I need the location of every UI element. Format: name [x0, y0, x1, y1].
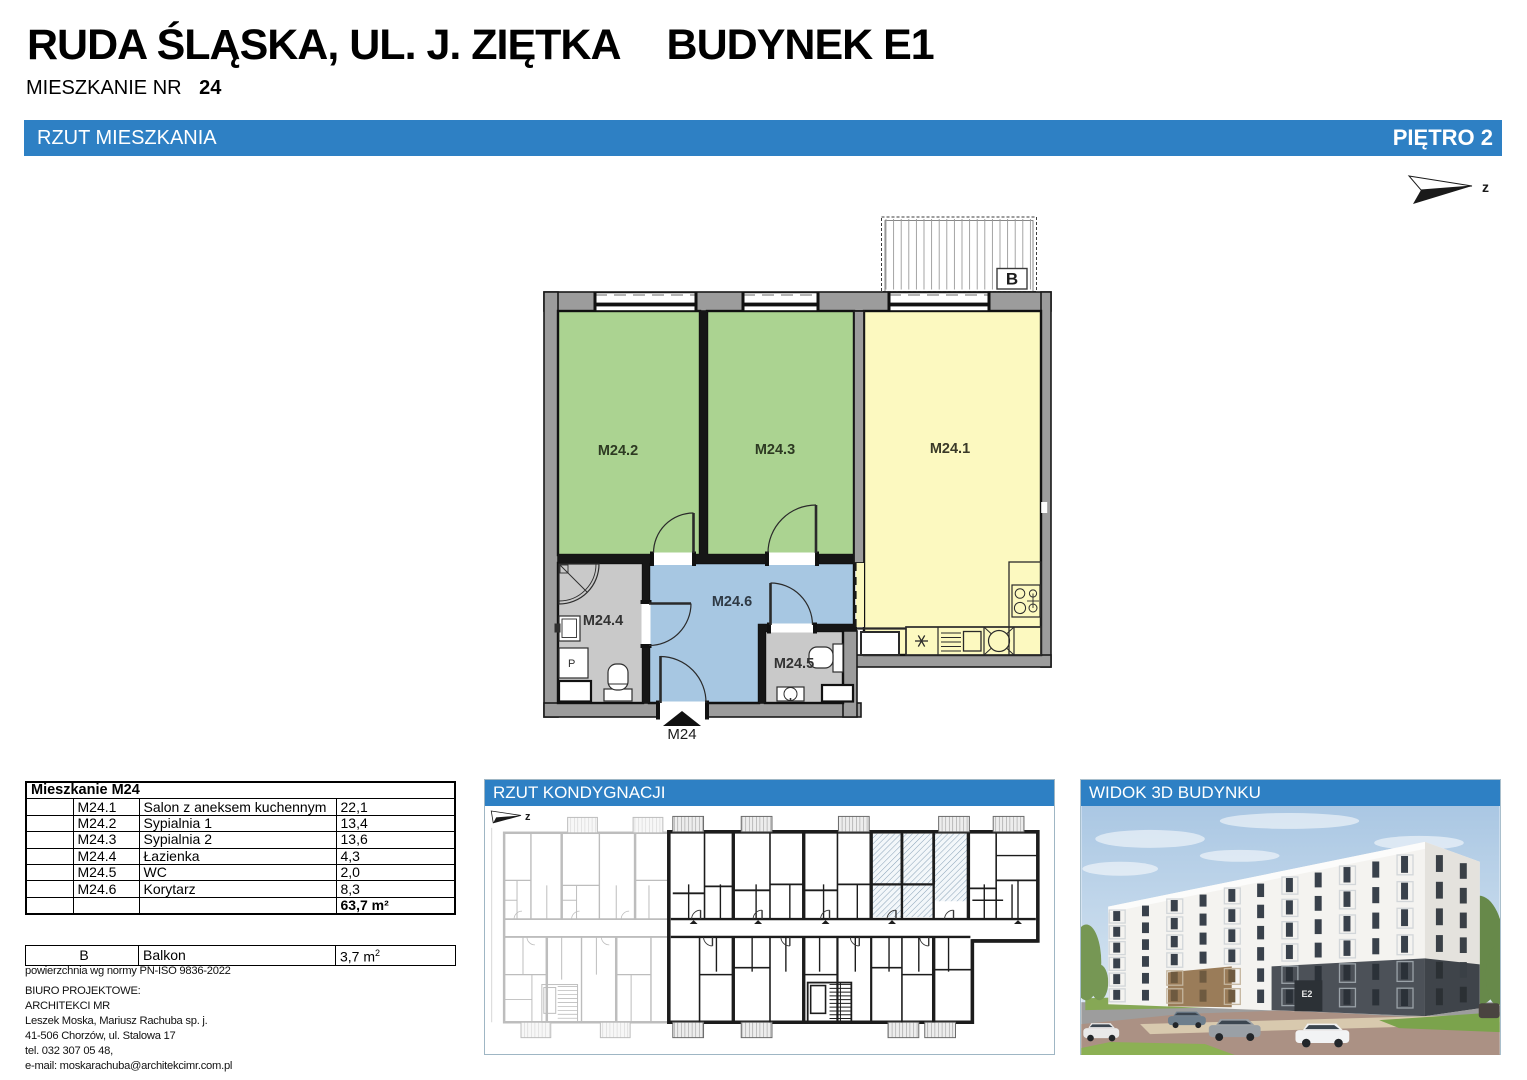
svg-text:M24.3: M24.3 [755, 442, 795, 458]
svg-text:M24.2: M24.2 [598, 443, 638, 459]
svg-text:M24.6: M24.6 [712, 594, 752, 610]
svg-text:M24: M24 [667, 726, 696, 743]
svg-text:P: P [568, 658, 575, 670]
svg-text:M24.5: M24.5 [774, 656, 814, 672]
svg-text:M24.4: M24.4 [583, 613, 623, 629]
svg-text:z: z [525, 811, 531, 823]
svg-text:E2: E2 [1301, 989, 1312, 999]
svg-text:z: z [1482, 179, 1489, 195]
svg-text:M24.1: M24.1 [930, 441, 970, 457]
svg-text:B: B [1006, 270, 1018, 289]
